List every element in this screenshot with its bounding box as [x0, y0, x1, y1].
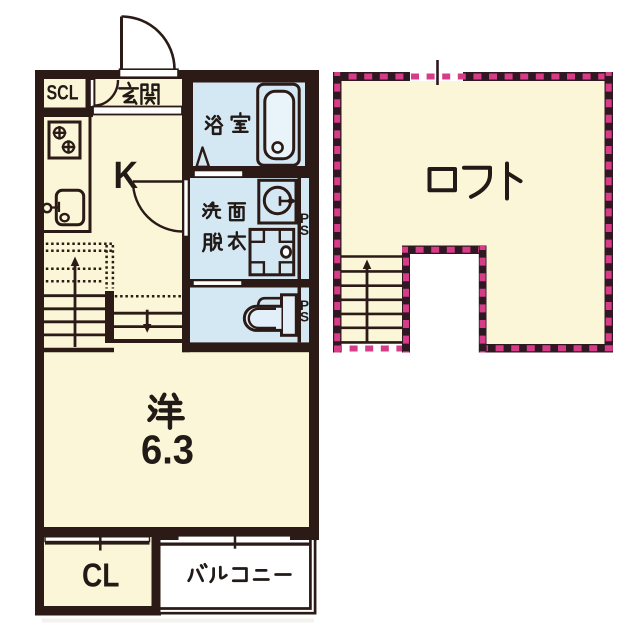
svg-text:CL: CL [82, 557, 120, 594]
svg-text:SCL: SCL [47, 82, 79, 105]
svg-text:S: S [300, 309, 309, 324]
svg-text:S: S [300, 223, 309, 238]
svg-text:6.3: 6.3 [141, 426, 194, 472]
